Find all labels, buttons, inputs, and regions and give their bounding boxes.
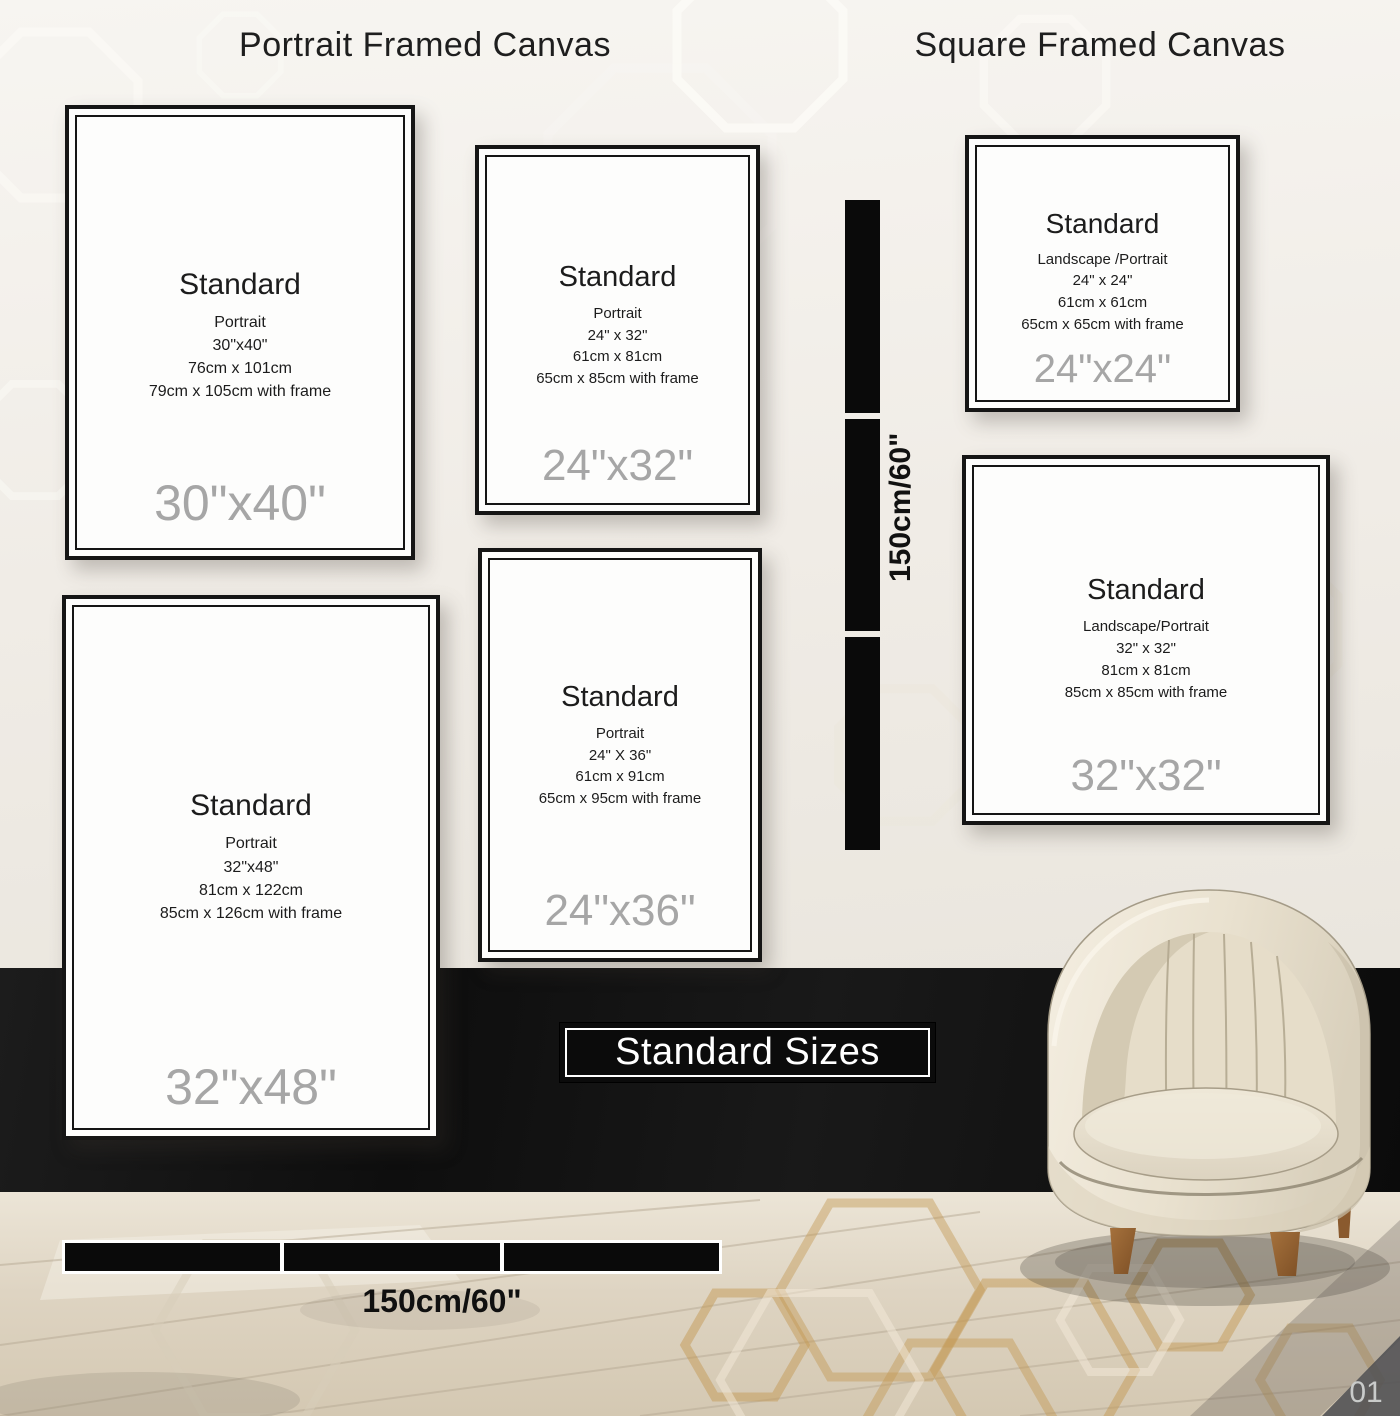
frame-heading: Standard [487, 261, 748, 294]
frame-inner-border: Standard Portrait 32"x48" 81cm x 122cm 8… [72, 605, 430, 1130]
ruler-segment [284, 1243, 499, 1271]
frame-orientation: Portrait [490, 723, 750, 745]
vertical-ruler-label: 150cm/60" [884, 392, 918, 582]
frame-heading: Standard [974, 574, 1318, 607]
frame-inner-border: Standard Landscape/Portrait 32" x 32" 81… [972, 465, 1320, 815]
frame-size-inches: 24" X 36" [490, 745, 750, 767]
horizontal-size-ruler [62, 1240, 722, 1274]
frame-size-cm: 61cm x 81cm [487, 346, 748, 368]
ruler-segment [845, 419, 880, 632]
banner-border: Standard Sizes [565, 1028, 930, 1077]
frame-heading: Standard [977, 208, 1228, 240]
frame-orientation: Landscape/Portrait [974, 616, 1318, 638]
frame-32x32: Standard Landscape/Portrait 32" x 32" 81… [962, 455, 1330, 825]
armchair-image [1018, 876, 1400, 1276]
frame-size-inches: 24" x 32" [487, 325, 748, 347]
frame-inner-border: Standard Portrait 24" X 36" 61cm x 91cm … [488, 558, 752, 952]
frame-inner-border: Standard Portrait 30"x40" 76cm x 101cm 7… [75, 115, 405, 550]
frame-size-label: 32"x32" [974, 751, 1318, 801]
frame-orientation: Portrait [487, 303, 748, 325]
frame-size-with-frame: 65cm x 95cm with frame [490, 788, 750, 810]
page-number: 01 [1336, 1376, 1396, 1410]
frame-size-cm: 81cm x 81cm [974, 660, 1318, 682]
frame-specs: Standard Portrait 30"x40" 76cm x 101cm 7… [77, 268, 403, 404]
frame-orientation: Landscape /Portrait [977, 249, 1228, 271]
frame-specs: Standard Landscape/Portrait 32" x 32" 81… [974, 574, 1318, 703]
frame-size-with-frame: 65cm x 65cm with frame [977, 314, 1228, 336]
frame-32x48: Standard Portrait 32"x48" 81cm x 122cm 8… [62, 595, 440, 1140]
horizontal-ruler-label: 150cm/60" [242, 1283, 642, 1320]
frame-specs: Standard Portrait 24" X 36" 61cm x 91cm … [490, 681, 750, 810]
frame-size-label: 24"x32" [487, 441, 748, 491]
frame-size-with-frame: 79cm x 105cm with frame [77, 380, 403, 403]
ruler-segment [65, 1243, 280, 1271]
ruler-segment [504, 1243, 719, 1271]
frame-24x36: Standard Portrait 24" X 36" 61cm x 91cm … [478, 548, 762, 962]
frame-24x32: Standard Portrait 24" x 32" 61cm x 81cm … [475, 145, 760, 515]
frame-size-label: 30"x40" [77, 474, 403, 532]
frame-orientation: Portrait [74, 832, 428, 855]
ruler-segment [845, 200, 880, 413]
ruler-segment [845, 637, 880, 850]
frame-size-cm: 81cm x 122cm [74, 879, 428, 902]
frame-size-with-frame: 85cm x 126cm with frame [74, 902, 428, 925]
frame-specs: Standard Portrait 24" x 32" 61cm x 81cm … [487, 261, 748, 390]
frame-30x40: Standard Portrait 30"x40" 76cm x 101cm 7… [65, 105, 415, 560]
vertical-size-ruler [845, 200, 880, 850]
frame-inner-border: Standard Portrait 24" x 32" 61cm x 81cm … [485, 155, 750, 505]
frame-specs: Standard Portrait 32"x48" 81cm x 122cm 8… [74, 789, 428, 925]
frame-size-cm: 61cm x 91cm [490, 766, 750, 788]
portrait-section-title: Portrait Framed Canvas [165, 26, 685, 65]
square-section-title: Square Framed Canvas [840, 26, 1360, 65]
standard-sizes-banner: Standard Sizes [560, 1023, 935, 1082]
frame-size-cm: 61cm x 61cm [977, 292, 1228, 314]
frame-size-label: 24"x36" [490, 886, 750, 936]
frame-heading: Standard [77, 268, 403, 302]
frame-size-cm: 76cm x 101cm [77, 357, 403, 380]
frame-inner-border: Standard Landscape /Portrait 24" x 24" 6… [975, 145, 1230, 402]
frame-heading: Standard [490, 681, 750, 714]
frame-size-inches: 32"x48" [74, 856, 428, 879]
frame-size-inches: 24" x 24" [977, 270, 1228, 292]
frame-24x24: Standard Landscape /Portrait 24" x 24" 6… [965, 135, 1240, 412]
frame-orientation: Portrait [77, 311, 403, 334]
frame-size-inches: 30"x40" [77, 334, 403, 357]
banner-label: Standard Sizes [615, 1031, 880, 1074]
frame-size-inches: 32" x 32" [974, 638, 1318, 660]
frame-size-with-frame: 65cm x 85cm with frame [487, 368, 748, 390]
frame-size-label: 24"x24" [977, 347, 1228, 392]
frame-size-label: 32"x48" [74, 1058, 428, 1116]
frame-specs: Standard Landscape /Portrait 24" x 24" 6… [977, 208, 1228, 336]
frame-size-with-frame: 85cm x 85cm with frame [974, 682, 1318, 704]
frame-heading: Standard [74, 789, 428, 823]
